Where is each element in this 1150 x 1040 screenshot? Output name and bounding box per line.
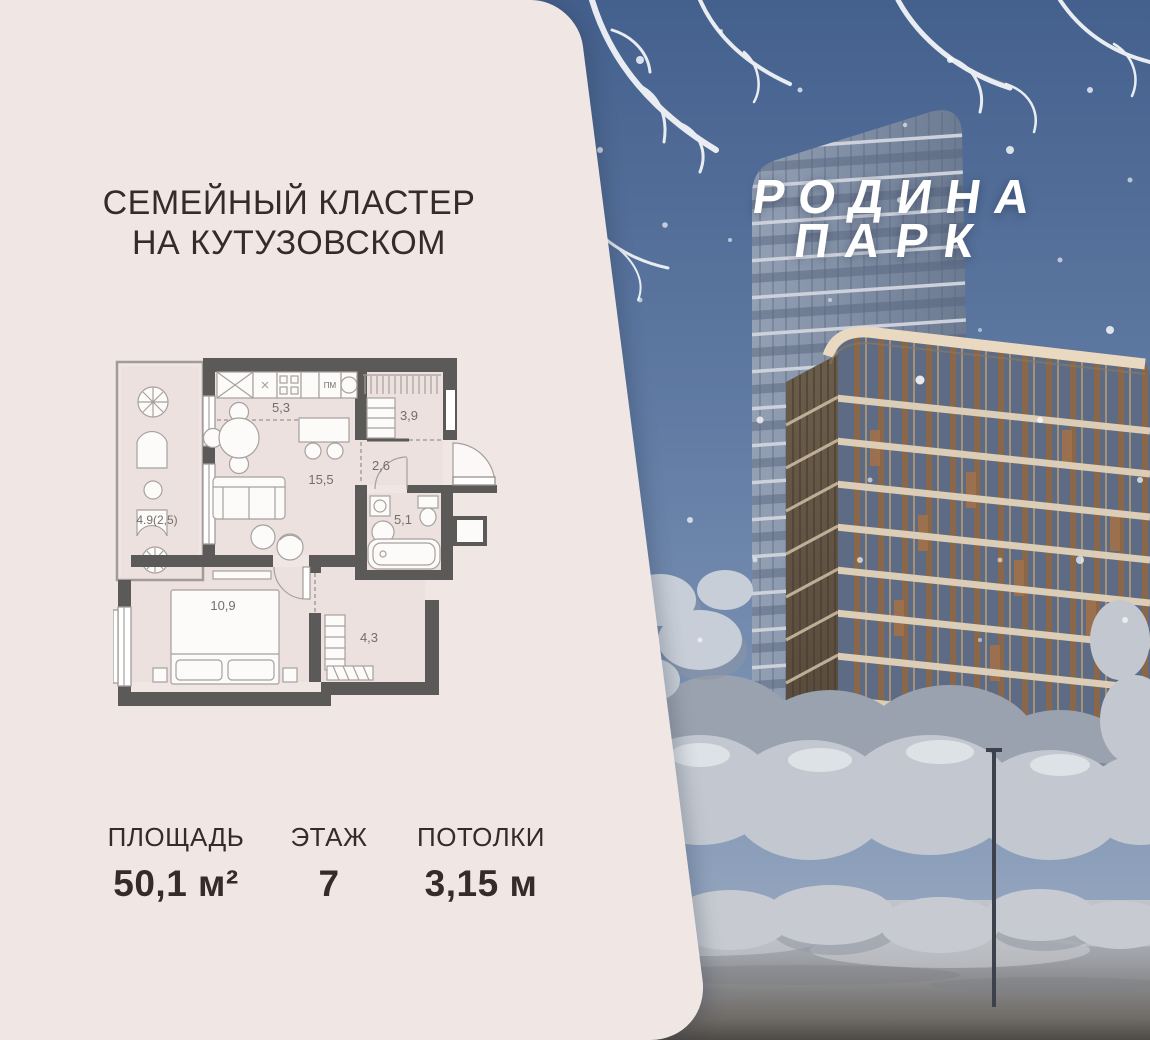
cluster-title-line2: НА КУТУЗОВСКОМ	[132, 224, 446, 262]
kitchen-cabinets: ПМ	[217, 372, 357, 398]
stat-floor-value: 7	[290, 863, 367, 905]
cluster-title: СЕМЕЙНЫЙ КЛАСТЕР НА КУТУЗОВСКОМ	[0, 183, 578, 263]
wardrobe-opening	[309, 573, 321, 613]
wardrobe-area: 4,3	[360, 630, 378, 645]
duct-niche	[446, 390, 455, 430]
stat-ceiling-label: ПОТОЛКИ	[417, 822, 545, 853]
entry-door	[453, 443, 495, 485]
stat-area-value: 50,1 м²	[108, 863, 245, 905]
stat-area-label: ПЛОЩАДЬ	[108, 822, 245, 853]
closet-area: 3,9	[400, 408, 418, 423]
listing-banner[interactable]: РОДИНА ПАРК СЕМЕЙНЫЙ КЛАСТЕР НА КУТУЗОВС…	[0, 0, 1150, 1040]
stat-floor-label: ЭТАЖ	[290, 822, 367, 853]
kitchen-area: 5,3	[272, 400, 290, 415]
floor-plan: ПМ	[113, 350, 505, 750]
stat-ceiling-value: 3,15 м	[417, 863, 545, 905]
apartment-stats: ПЛОЩАДЬ 50,1 м² ЭТАЖ 7 ПОТОЛКИ 3,15 м	[0, 822, 578, 922]
cluster-title-line1: СЕМЕЙНЫЙ КЛАСТЕР	[103, 184, 476, 222]
stat-area: ПЛОЩАДЬ 50,1 м²	[108, 822, 245, 905]
living-room-area: 15,5	[308, 472, 333, 487]
balcony-area: 4.9(2,5)	[136, 513, 177, 527]
stat-ceiling: ПОТОЛКИ 3,15 м	[417, 822, 545, 905]
bedroom-area: 10,9	[210, 598, 235, 613]
bathroom-area: 5,1	[394, 512, 412, 527]
hallway-area: 2,6	[372, 458, 390, 473]
apartment-card: СЕМЕЙНЫЙ КЛАСТЕР НА КУТУЗОВСКОМ	[0, 0, 1150, 1040]
dishwasher-label: ПМ	[324, 381, 337, 390]
stat-floor: ЭТАЖ 7	[290, 822, 367, 905]
shaft-box	[455, 518, 485, 544]
